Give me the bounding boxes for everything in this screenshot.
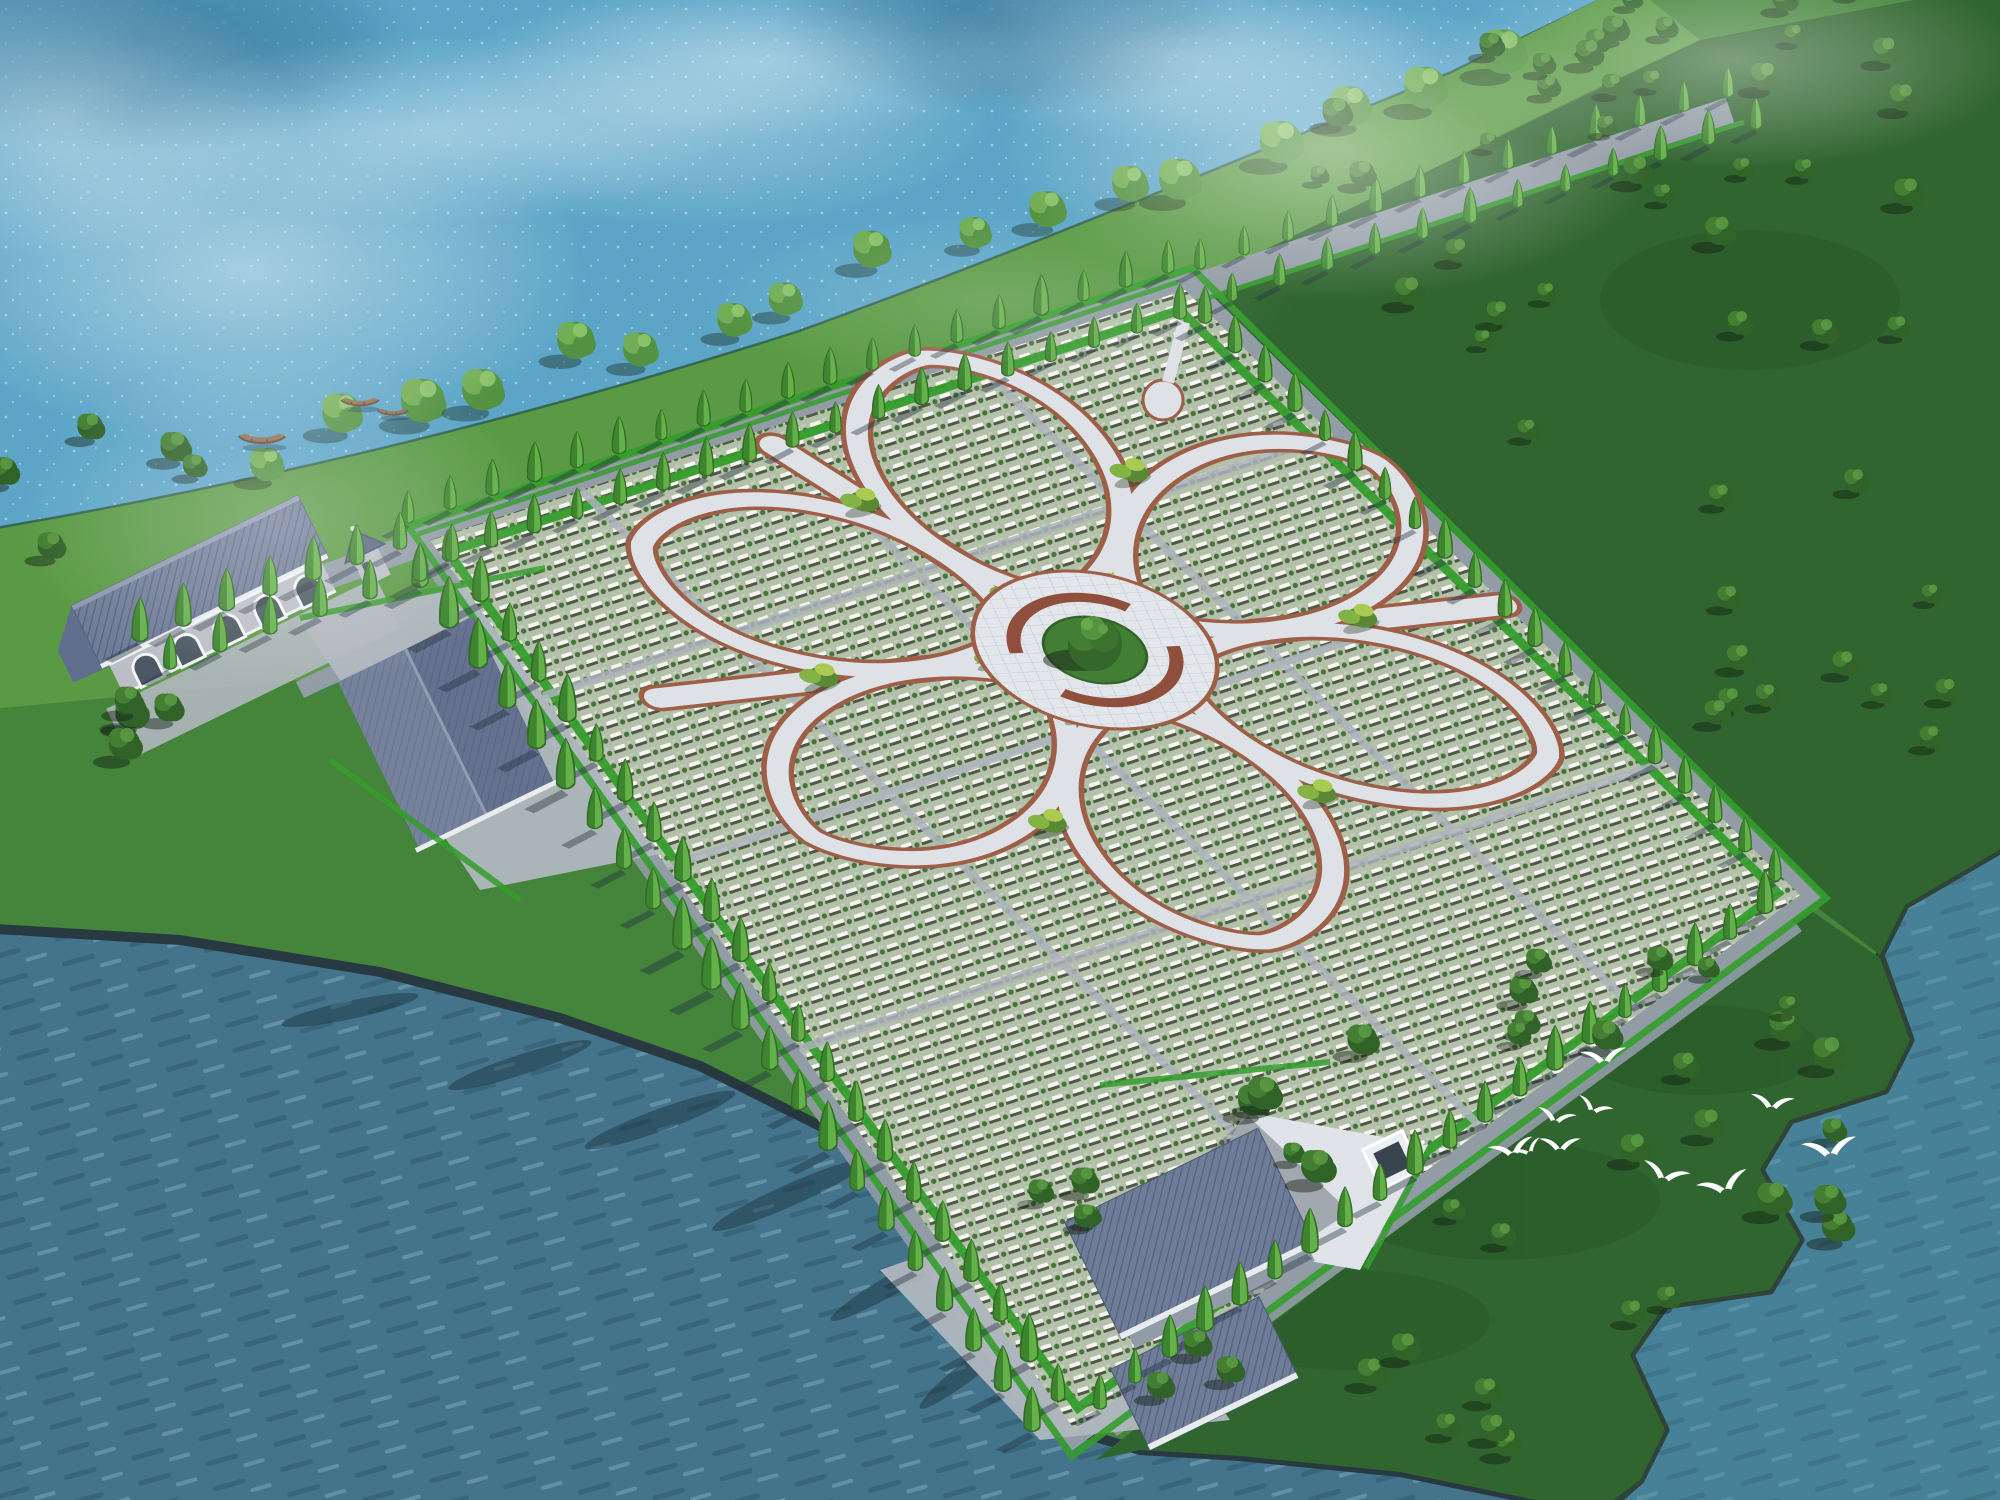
atmospheric-haze: [0, 0, 2000, 1500]
scene-memorial-park-rendering: Aerial 3D architectural rendering of a l…: [0, 0, 2000, 1500]
aerial-rendering-stage: Aerial 3D architectural rendering of a l…: [0, 0, 2000, 1500]
